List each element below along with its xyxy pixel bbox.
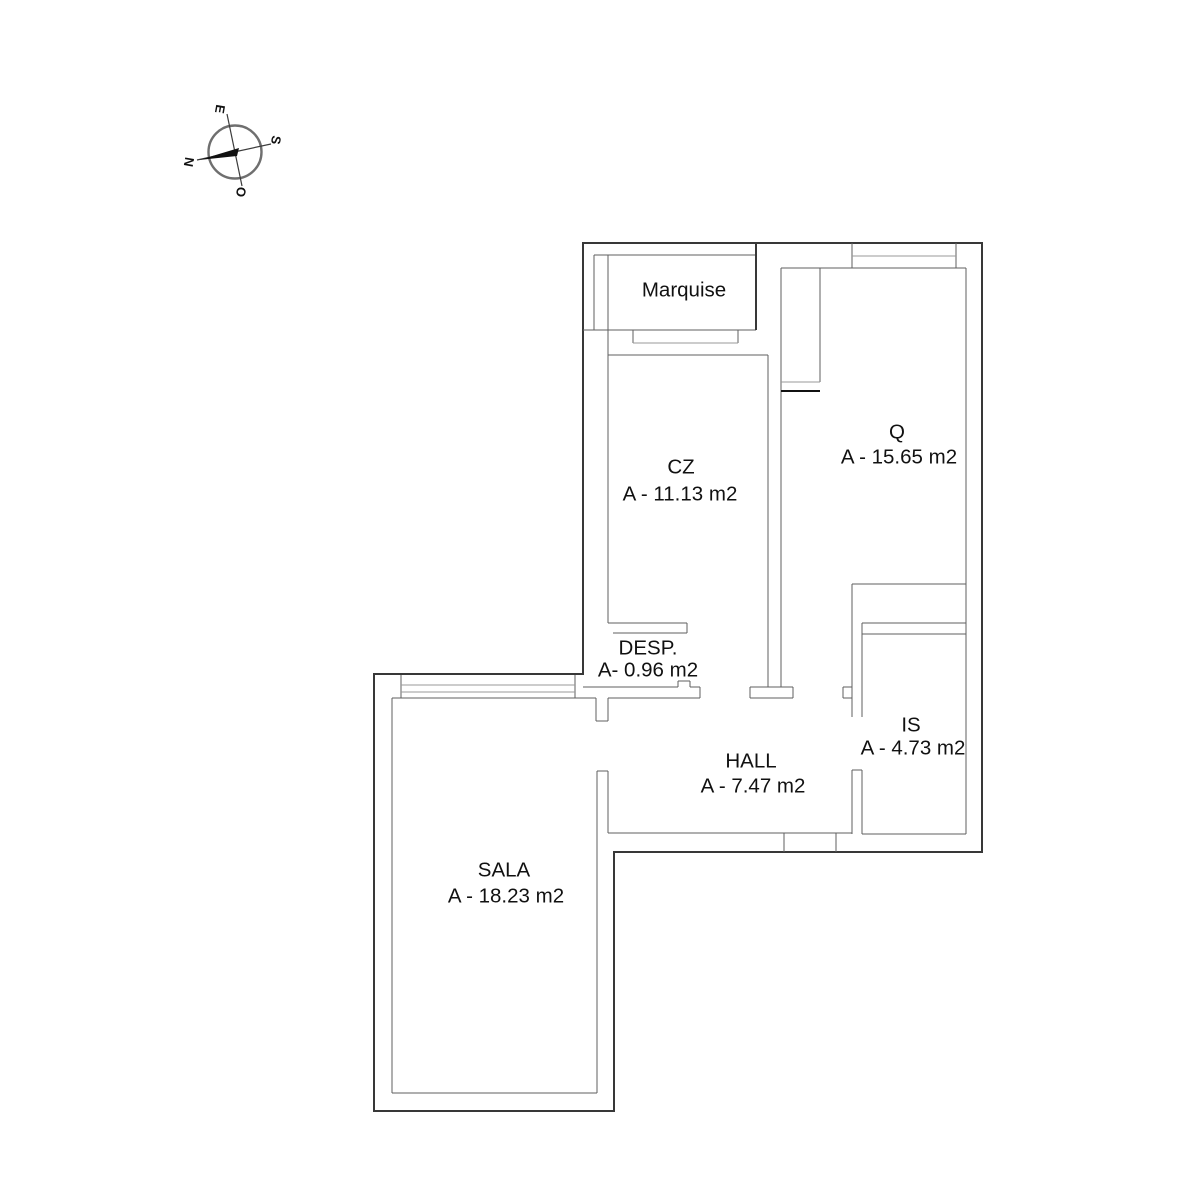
hall-cz-door-jamb	[750, 687, 793, 698]
cz-q-divider-walls	[750, 268, 820, 698]
desp-area: A- 0.96 m2	[598, 659, 698, 682]
compass-label-west: O	[233, 186, 250, 199]
compass-rose: E S N O	[181, 103, 284, 198]
room-label-hall: HALL A - 7.47 m2	[701, 750, 806, 798]
q-name: Q	[889, 421, 905, 444]
hall-area: A - 7.47 m2	[701, 775, 806, 798]
room-labels: Marquise CZ A - 11.13 m2 Q A - 15.65 m2 …	[448, 279, 966, 908]
compass-label-east: E	[212, 103, 228, 114]
hall-walls	[608, 833, 852, 852]
floor-plan-drawing: E S N O	[0, 0, 1200, 1200]
is-area: A - 4.73 m2	[861, 737, 966, 760]
room-label-desp: DESP. A- 0.96 m2	[598, 637, 698, 682]
floor-plan-page: E S N O	[0, 0, 1200, 1200]
room-label-cz: CZ A - 11.13 m2	[623, 456, 738, 506]
cz-name: CZ	[667, 456, 694, 479]
hall-name: HALL	[725, 750, 776, 773]
cz-area: A - 11.13 m2	[623, 483, 738, 506]
sala-window	[401, 685, 575, 692]
desp-name: DESP.	[619, 637, 678, 660]
compass-label-north: N	[181, 156, 197, 168]
is-name: IS	[901, 714, 920, 737]
sala-name: SALA	[478, 859, 531, 882]
room-label-marquise: Marquise	[642, 279, 726, 302]
q-area: A - 15.65 m2	[841, 446, 957, 469]
room-label-q: Q A - 15.65 m2	[841, 421, 957, 469]
marquise-name: Marquise	[642, 279, 726, 302]
room-label-sala: SALA A - 18.23 m2	[448, 859, 564, 908]
sala-area: A - 18.23 m2	[448, 885, 564, 908]
room-label-is: IS A - 4.73 m2	[861, 714, 966, 760]
